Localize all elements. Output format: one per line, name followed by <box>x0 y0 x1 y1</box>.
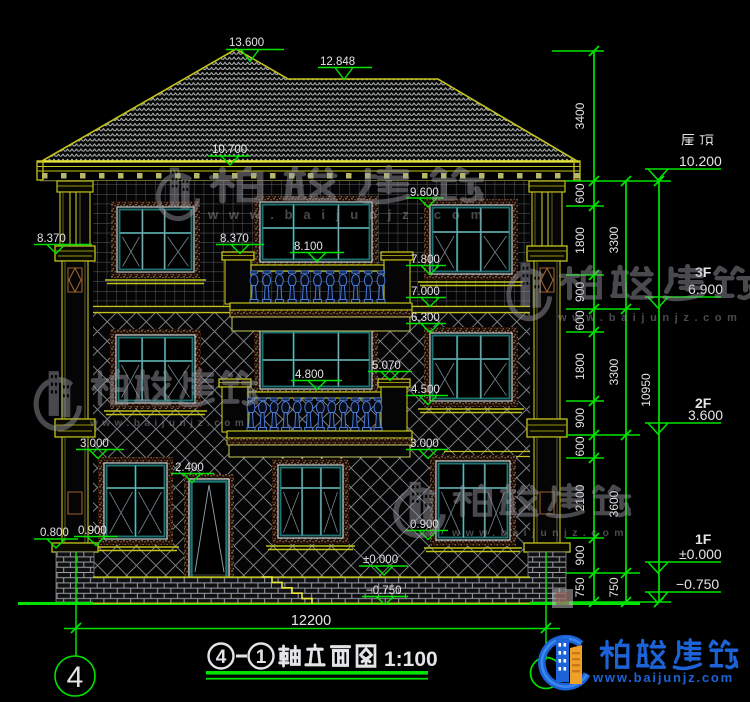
svg-text:900: 900 <box>573 545 587 565</box>
svg-text:8.100: 8.100 <box>294 241 323 253</box>
svg-text:4: 4 <box>216 647 227 668</box>
svg-text:1F: 1F <box>695 531 712 547</box>
svg-text:www.baijunjz.com: www.baijunjz.com <box>207 207 493 222</box>
svg-text:www.baijunjz.com: www.baijunjz.com <box>451 527 629 539</box>
svg-text:1800: 1800 <box>573 353 587 380</box>
svg-text:3.000: 3.000 <box>80 438 109 450</box>
svg-text:1800: 1800 <box>573 227 587 254</box>
svg-text:3300: 3300 <box>607 358 621 385</box>
svg-text:4: 4 <box>67 661 84 694</box>
svg-text:7.000: 7.000 <box>411 286 440 298</box>
svg-text:600: 600 <box>573 183 587 203</box>
svg-text:±0.000: ±0.000 <box>363 554 398 566</box>
svg-text:0.800: 0.800 <box>40 527 69 539</box>
svg-text:13.600: 13.600 <box>229 37 264 49</box>
svg-text:www.baijunjz.com: www.baijunjz.com <box>592 670 734 685</box>
svg-text:1: 1 <box>256 647 267 668</box>
svg-text:750: 750 <box>607 577 621 597</box>
svg-text:7.800: 7.800 <box>411 254 440 266</box>
svg-text:8.370: 8.370 <box>37 233 66 245</box>
svg-text:2.400: 2.400 <box>175 462 204 474</box>
svg-text:6.300: 6.300 <box>411 312 440 324</box>
svg-text:0.900: 0.900 <box>78 525 107 537</box>
svg-text:600: 600 <box>573 436 587 456</box>
svg-text:2F: 2F <box>695 395 712 411</box>
svg-text:±0.000: ±0.000 <box>679 546 722 562</box>
svg-text:12200: 12200 <box>291 613 331 629</box>
svg-text:−0.750: −0.750 <box>676 576 719 592</box>
svg-text:4.500: 4.500 <box>411 384 440 396</box>
svg-text:8.370: 8.370 <box>220 233 249 245</box>
svg-text:1:100: 1:100 <box>384 648 438 671</box>
svg-text:10.700: 10.700 <box>212 144 247 156</box>
svg-text:750: 750 <box>573 577 587 597</box>
svg-text:3400: 3400 <box>573 102 587 129</box>
svg-text:10.200: 10.200 <box>679 153 722 169</box>
svg-text:10950: 10950 <box>639 373 653 407</box>
svg-text:4.800: 4.800 <box>295 369 324 381</box>
svg-text:5.070: 5.070 <box>372 360 401 372</box>
svg-text:www.baijunjz.com: www.baijunjz.com <box>89 418 248 429</box>
svg-text:12.848: 12.848 <box>320 56 355 68</box>
svg-text:900: 900 <box>573 408 587 428</box>
svg-text:www.baijunjz.com: www.baijunjz.com <box>557 312 743 324</box>
svg-text:3300: 3300 <box>607 226 621 253</box>
svg-text:−0.750: −0.750 <box>366 585 402 597</box>
svg-text:3.000: 3.000 <box>410 438 439 450</box>
